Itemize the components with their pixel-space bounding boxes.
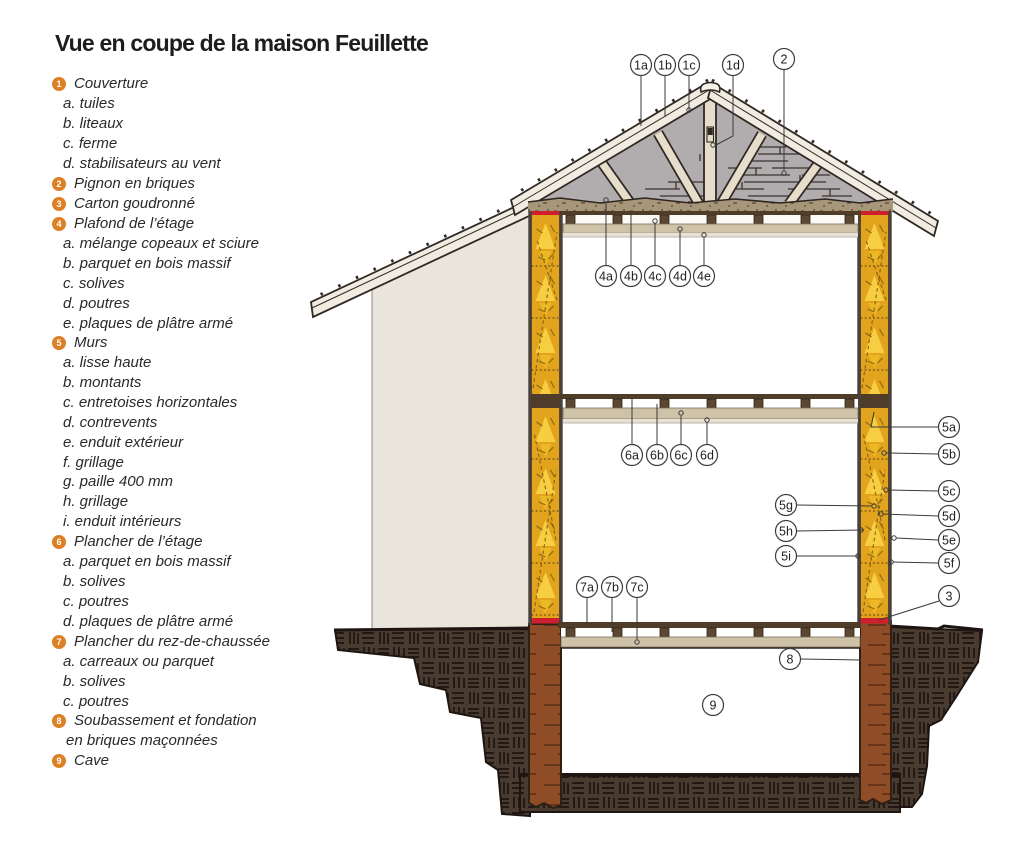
svg-text:5h: 5h bbox=[779, 525, 793, 539]
svg-text:6a: 6a bbox=[625, 449, 639, 463]
svg-text:8: 8 bbox=[787, 653, 794, 667]
svg-text:1b: 1b bbox=[658, 59, 672, 73]
svg-text:7b: 7b bbox=[605, 581, 619, 595]
svg-text:4c: 4c bbox=[648, 270, 661, 284]
svg-text:7c: 7c bbox=[630, 581, 643, 595]
svg-text:1a: 1a bbox=[634, 59, 648, 73]
svg-text:5d: 5d bbox=[942, 510, 956, 524]
svg-text:6c: 6c bbox=[674, 449, 687, 463]
svg-text:7a: 7a bbox=[580, 581, 594, 595]
svg-text:5a: 5a bbox=[942, 421, 956, 435]
svg-text:5i: 5i bbox=[781, 550, 791, 564]
svg-text:1d: 1d bbox=[726, 59, 740, 73]
svg-text:1c: 1c bbox=[682, 59, 695, 73]
svg-text:5c: 5c bbox=[942, 485, 955, 499]
svg-text:4e: 4e bbox=[697, 270, 711, 284]
svg-text:6d: 6d bbox=[700, 449, 714, 463]
svg-text:4b: 4b bbox=[624, 270, 638, 284]
svg-text:6b: 6b bbox=[650, 449, 664, 463]
svg-text:5e: 5e bbox=[942, 534, 956, 548]
svg-text:9: 9 bbox=[710, 699, 717, 713]
svg-text:3: 3 bbox=[946, 590, 953, 604]
svg-text:5f: 5f bbox=[944, 557, 955, 571]
svg-text:5g: 5g bbox=[779, 499, 793, 513]
svg-text:4a: 4a bbox=[599, 270, 613, 284]
svg-text:4d: 4d bbox=[673, 270, 687, 284]
svg-text:2: 2 bbox=[781, 53, 788, 67]
svg-text:5b: 5b bbox=[942, 448, 956, 462]
